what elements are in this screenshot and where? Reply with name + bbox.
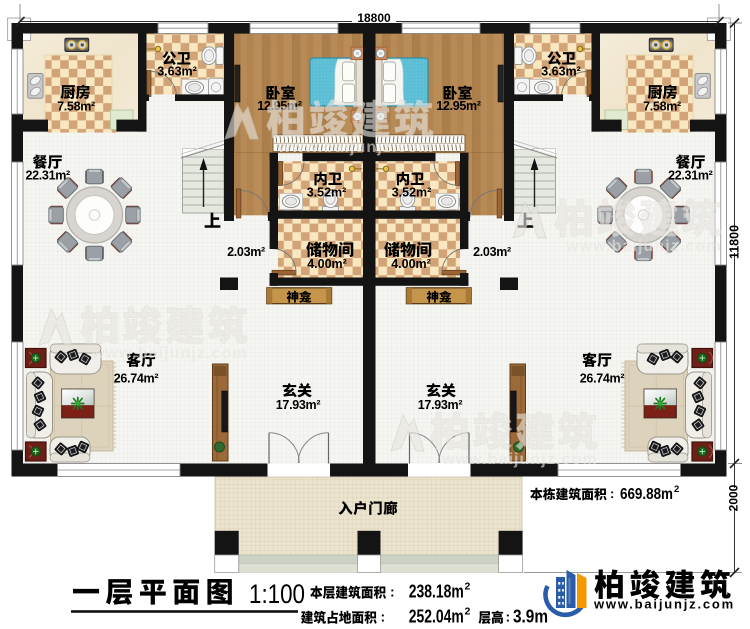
svg-text::: : [390,584,395,600]
svg-text:1:100: 1:100 [249,579,305,609]
svg-text:www.baijunjz.com: www.baijunjz.com [565,238,722,255]
svg-text:26.74m²: 26.74m² [580,372,625,386]
svg-text:22.31m²: 22.31m² [25,169,70,183]
svg-text:2: 2 [465,606,471,618]
svg-text:11800: 11800 [728,225,742,259]
svg-text:4.00m²: 4.00m² [307,257,347,271]
svg-text::: : [381,609,386,625]
svg-text:www.baijunjz.com: www.baijunjz.com [593,597,735,612]
svg-text::: : [506,609,511,625]
svg-text:669.88m: 669.88m [620,486,673,503]
svg-text:252.04m: 252.04m [409,607,464,627]
svg-text:2000: 2000 [727,484,741,511]
svg-text:238.18m: 238.18m [409,582,464,602]
svg-text:18800: 18800 [357,11,391,25]
svg-text:2.03m²: 2.03m² [227,245,265,259]
svg-text:12.95m²: 12.95m² [436,99,481,113]
svg-text:3.63m²: 3.63m² [541,65,581,79]
svg-text:2.03m²: 2.03m² [473,245,511,259]
svg-text:3.52m²: 3.52m² [307,186,347,200]
svg-text:7.58m²: 7.58m² [57,100,95,114]
svg-text:2: 2 [465,581,471,593]
svg-text:3.52m²: 3.52m² [392,186,432,200]
svg-text:7.58m²: 7.58m² [643,100,681,114]
svg-text:17.93m²: 17.93m² [418,398,463,412]
svg-text:www.baijunjz.com: www.baijunjz.com [441,451,598,468]
svg-text:3.9m: 3.9m [513,607,548,627]
svg-text:26.74m²: 26.74m² [114,372,159,386]
svg-text:4.00m²: 4.00m² [391,257,431,271]
svg-text:www.baijunjz.com: www.baijunjz.com [91,345,248,362]
svg-text::: : [610,486,614,501]
svg-text:22.31m²: 22.31m² [668,169,713,183]
svg-text:www.baijunjz.com: www.baijunjz.com [277,139,434,156]
svg-text:17.93m²: 17.93m² [276,398,321,412]
svg-text:3.63m²: 3.63m² [157,65,197,79]
svg-text:2: 2 [674,484,679,495]
